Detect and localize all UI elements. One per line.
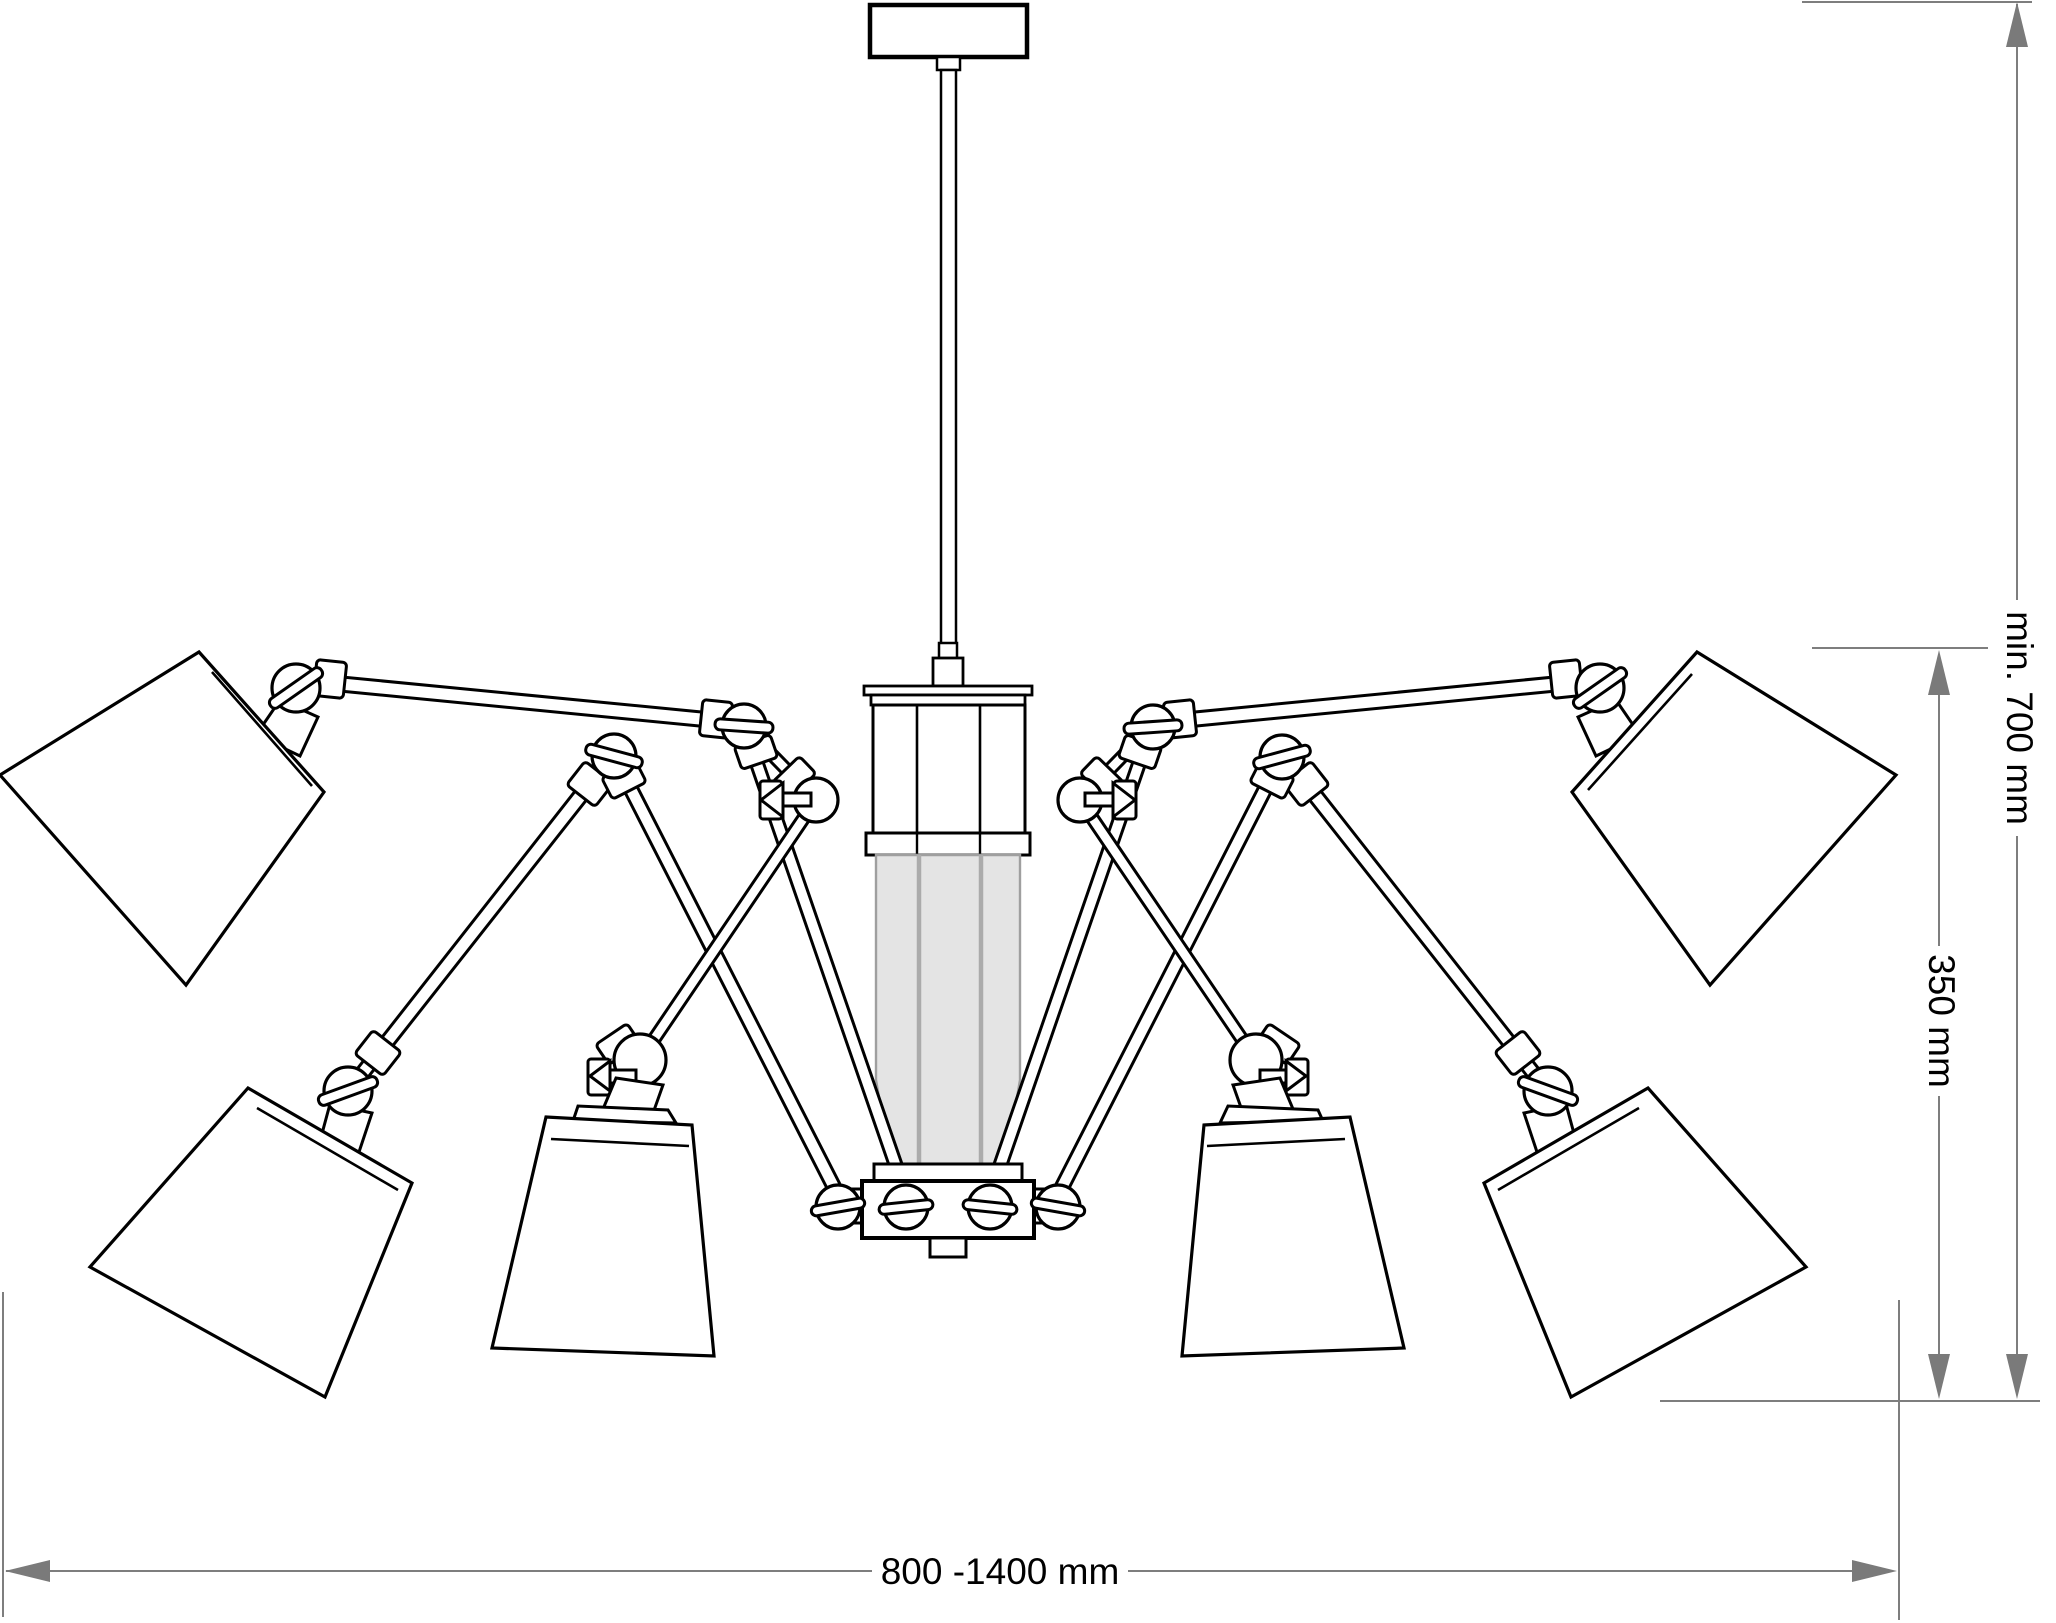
shade-cone: [1182, 1117, 1404, 1356]
knob-elbow-top-left: [267, 664, 324, 712]
upper-arm-right: [1164, 674, 1587, 729]
diagonal-arm-right: [1286, 762, 1542, 1081]
bottom-hub: [845, 1164, 1051, 1257]
shade-bottom-right: [1484, 1088, 1806, 1397]
ceiling-canopy: [870, 5, 1027, 686]
chandelier-technical-drawing-page: min. 700 mm 350 mm 800 -1400 mm: [0, 0, 2056, 1623]
hanging-rod: [941, 70, 956, 648]
dimension-label-overall-height: min. 700 mm: [1999, 611, 2040, 825]
arrow-up-icon: [2006, 2, 2028, 47]
fixture: [0, 5, 1896, 1397]
shade-center-right: [1182, 1023, 1404, 1356]
arrow-right-icon: [1852, 1560, 1897, 1582]
shade-cone: [492, 1117, 714, 1356]
shade-center-left: [492, 1023, 714, 1356]
dimension-label-overall-width: 800 -1400 mm: [881, 1551, 1120, 1592]
arrow-down-icon: [1928, 1354, 1950, 1399]
diagonal-arm-left: [354, 762, 610, 1081]
arrow-left-icon: [5, 1560, 50, 1582]
chandelier-technical-drawing: min. 700 mm 350 mm 800 -1400 mm: [0, 0, 2056, 1623]
shade-bottom-left: [90, 1088, 412, 1397]
dimension-label-body-height: 350 mm: [1921, 954, 1962, 1088]
upper-arm-left: [309, 674, 732, 729]
glass-diffuser: [876, 855, 1020, 1167]
arrow-down-icon: [2006, 1354, 2028, 1399]
central-column: [864, 686, 1032, 855]
arrow-up-icon: [1928, 650, 1950, 695]
hub-finial: [930, 1238, 966, 1257]
